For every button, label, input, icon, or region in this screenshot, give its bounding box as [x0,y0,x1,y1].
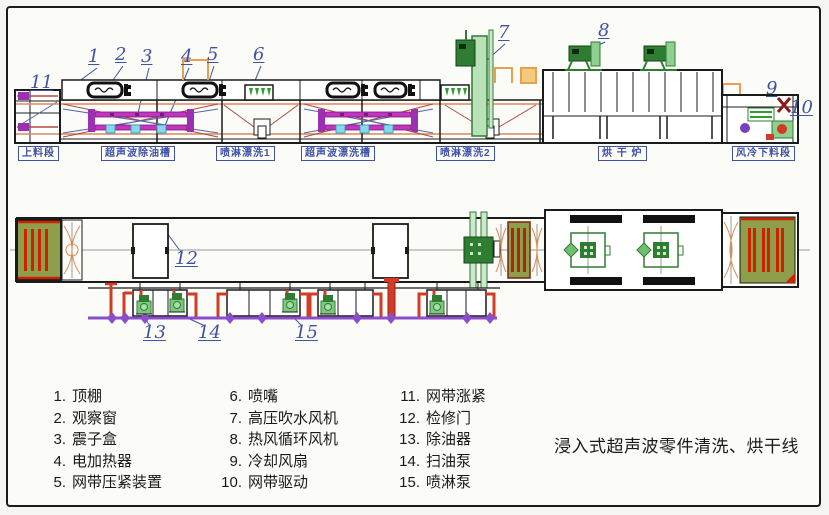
callout-13: 13 [143,324,166,342]
ultrasonic-degrease-tank [63,104,218,137]
legend-item-label: 高压吹水风机 [248,410,338,427]
access-door [371,224,409,278]
transducer-box-icon [384,125,393,133]
transducer-box-icon [106,125,115,133]
legend-item-number: 3. [40,429,66,451]
legend-item-number: 6. [216,386,242,408]
legend-item-number: 2. [40,408,66,430]
legend-item-number: 5. [40,472,66,494]
ultrasonic-rinse-tank [304,104,433,137]
legend-item-number: 9. [216,451,242,473]
legend-item-label: 热风循环风机 [248,431,338,448]
legend-item-label: 冷却风扇 [248,453,308,470]
legend-column-1: 1.顶棚 2.观察窗 3.震子盒 4.电加热器 5.网带压紧装置 [40,386,162,494]
callout-3: 3 [141,48,152,66]
access-door [131,224,169,278]
legend-item: 15.喷淋泵 [394,472,486,494]
loading-section [15,90,60,143]
legend-item: 9.冷却风扇 [216,451,338,473]
callout-4: 4 [181,48,192,66]
section-label-air-cooled-unload: 风冷下料段 [732,146,795,161]
legend-item: 12.检修门 [394,408,486,430]
legend-item-number: 11. [394,386,420,408]
transducer-box-icon [131,125,140,133]
legend-item-label: 震子盒 [72,431,117,448]
high-pressure-blower-icon [456,30,493,136]
callout-2: 2 [115,46,126,64]
heater-bar-icon [95,112,187,117]
observation-window-icon [183,83,226,97]
transducer-box-icon [360,125,369,133]
oven-plan [545,210,722,290]
legend-column-3: 11.网带涨紧 12.检修门 13.除油器 14.扫油泵 15.喷淋泵 [394,386,486,494]
legend-item-number: 15. [394,472,420,494]
legend-item-label: 观察窗 [72,410,117,427]
nozzle-box-icon [441,85,469,100]
spray-rinse-1-tank [224,105,298,138]
nozzle-box-icon [245,85,273,100]
hot-air-fan-icon [640,42,677,70]
section-label-loading: 上料段 [18,146,59,161]
callout-12: 12 [175,250,198,268]
drying-oven [543,70,722,143]
callout-10: 10 [790,99,813,117]
legend-item: 2.观察窗 [40,408,162,430]
legend-item: 4.电加热器 [40,451,162,473]
section-label-spray-rinse-2: 喷淋漂洗2 [436,146,495,161]
legend-item-label: 网带压紧装置 [72,474,162,491]
section-label-ultrasonic-rinse: 超声波漂洗槽 [301,146,375,161]
legend-item: 10.网带驱动 [216,472,338,494]
legend-item-label: 扫油泵 [426,453,471,470]
legend-item-label: 顶棚 [72,388,102,405]
callout-14: 14 [198,324,221,342]
legend-item: 7.高压吹水风机 [216,408,338,430]
legend-item-label: 检修门 [426,410,471,427]
legend-item: 5.网带压紧装置 [40,472,162,494]
belt-tensioner-icon [18,123,29,131]
inlet-fan-icon [62,220,82,280]
legend-item-number: 14. [394,451,420,473]
legend-item-number: 7. [216,408,242,430]
legend-item-label: 网带涨紧 [426,388,486,405]
observation-window-icon [327,83,368,97]
outlet-block [722,213,798,287]
legend-item-number: 10. [216,472,242,494]
blower-plan-icon [464,212,500,288]
top-view [15,30,798,143]
belt-tensioner-icon [18,92,29,100]
hot-air-fan-icon [565,42,602,70]
observation-window-icon [88,83,131,97]
callout-9: 9 [766,80,777,98]
callout-8: 8 [598,22,609,40]
legend-item: 1.顶棚 [40,386,162,408]
legend-item: 3.震子盒 [40,429,162,451]
legend-item-label: 网带驱动 [248,474,308,491]
callout-7: 7 [498,24,509,42]
legend-column-2: 6.喷嘴 7.高压吹水风机 8.热风循环风机 9.冷却风扇 10.网带驱动 [216,386,338,494]
legend-item-label: 电加热器 [72,453,132,470]
legend-item: 11.网带涨紧 [394,386,486,408]
unload-section [722,95,798,143]
callout-11: 11 [30,74,53,92]
legend-item: 13.除油器 [394,429,486,451]
observation-window-icon [375,83,415,97]
transducer-box-icon [336,125,345,133]
legend-item: 8.热风循环风机 [216,429,338,451]
legend-item: 14.扫油泵 [394,451,486,473]
callout-1: 1 [88,48,99,66]
callout-15: 15 [295,324,318,342]
motor-icon [740,123,750,133]
legend-item-number: 8. [216,429,242,451]
section-label-ultrasonic-degrease: 超声波除油槽 [101,146,175,161]
section-label-spray-rinse-1: 喷淋漂洗1 [216,146,275,161]
belt-tension-block [17,220,61,280]
legend-item-label: 喷嘴 [248,388,278,405]
section-label-drying-oven: 烘 干 炉 [598,146,647,161]
diagram-title: 浸入式超声波零件清洗、烘干线 [554,432,799,457]
legend-item-label: 除油器 [426,431,471,448]
callout-5: 5 [207,46,218,64]
legend-item-label: 喷淋泵 [426,474,471,491]
legend-item: 6.喷嘴 [216,386,338,408]
callout-6: 6 [253,46,264,64]
legend-item-number: 4. [40,451,66,473]
legend-item-number: 12. [394,408,420,430]
plan-view [10,210,810,324]
legend-item-number: 1. [40,386,66,408]
legend-item-number: 13. [394,429,420,451]
transducer-box-icon [157,125,166,133]
